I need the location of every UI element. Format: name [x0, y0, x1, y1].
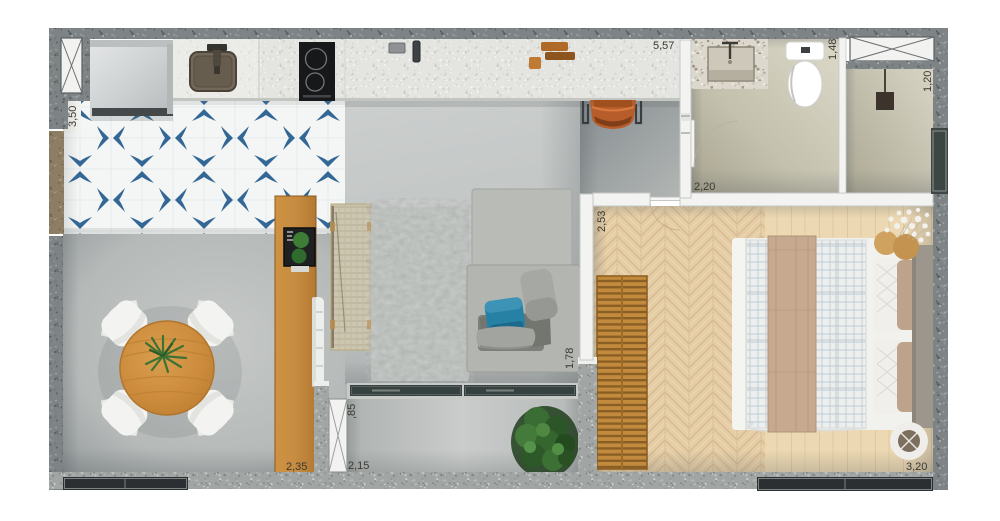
svg-text:5,57: 5,57 [653, 40, 674, 52]
svg-text:3,20: 3,20 [906, 461, 927, 473]
svg-text:3,50: 3,50 [67, 106, 79, 127]
svg-text:2,35: 2,35 [286, 461, 307, 473]
svg-text:1,20: 1,20 [922, 71, 934, 92]
svg-text:1,78: 1,78 [564, 348, 576, 369]
svg-text:2,20: 2,20 [694, 181, 715, 193]
svg-text:,85: ,85 [346, 404, 358, 419]
svg-text:1,48: 1,48 [827, 39, 839, 60]
svg-text:2,15: 2,15 [348, 460, 369, 472]
svg-text:2,53: 2,53 [596, 211, 608, 232]
